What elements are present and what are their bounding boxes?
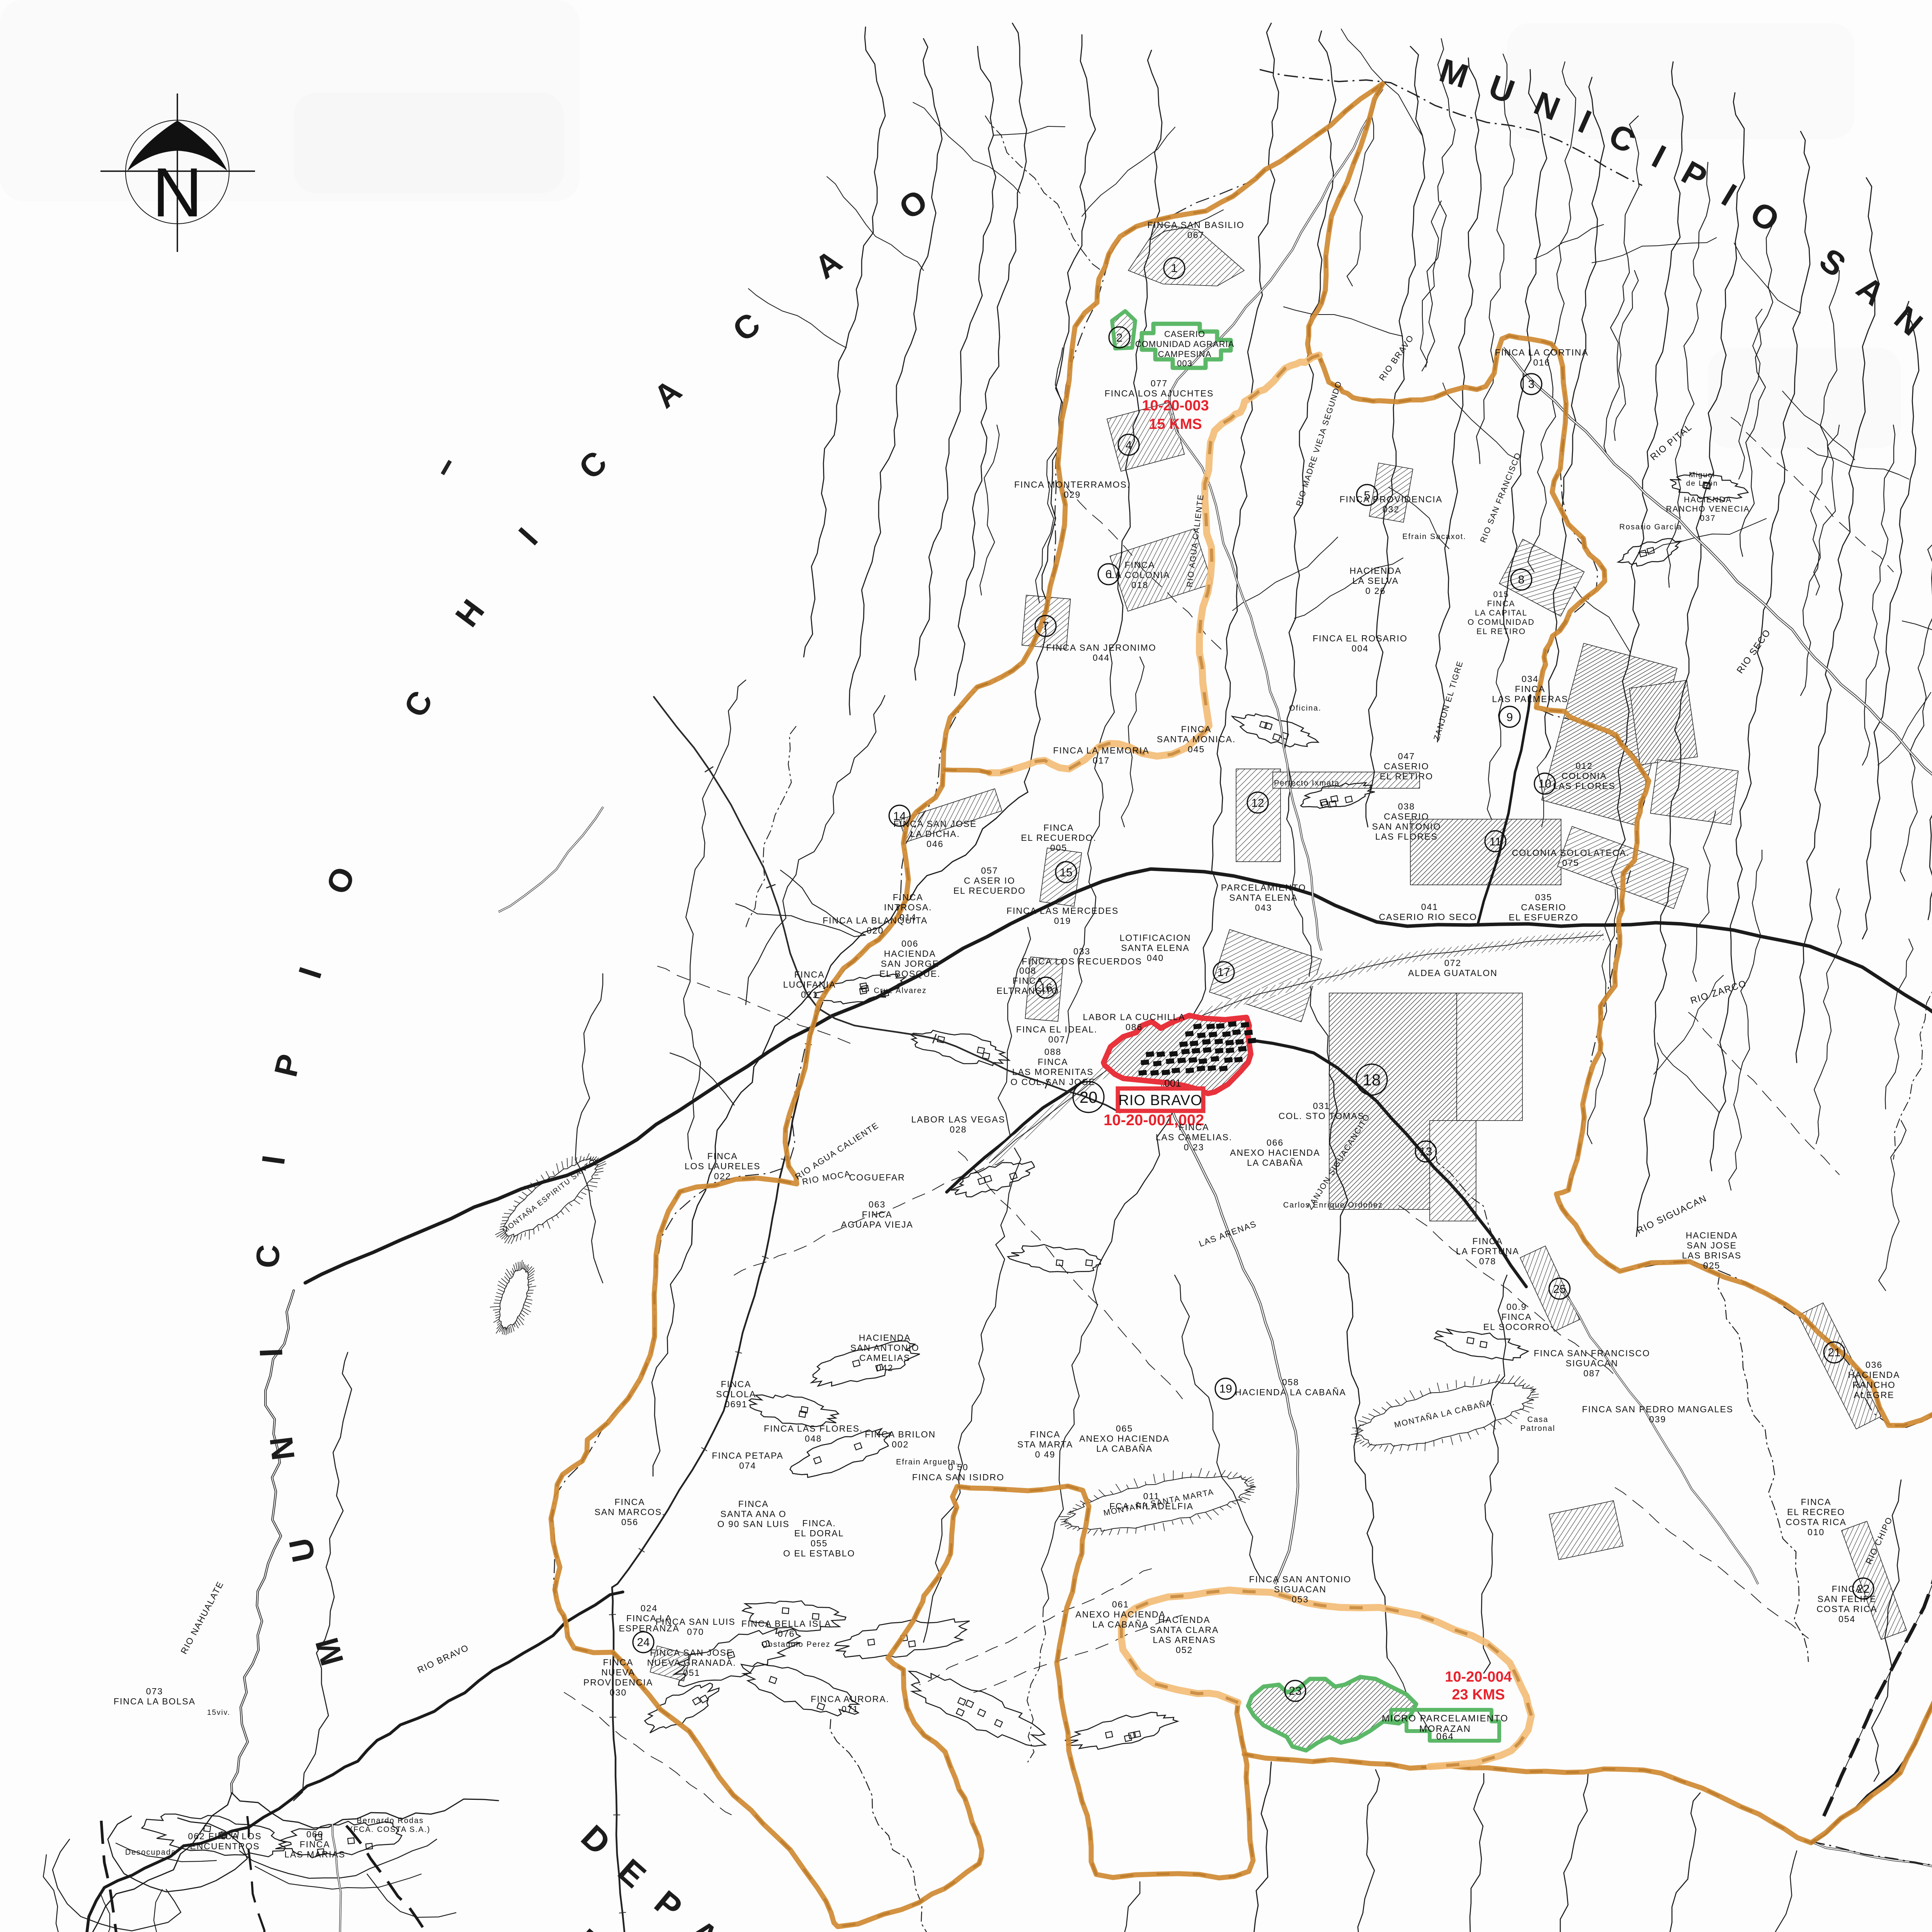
svg-text:064: 064	[1436, 1731, 1454, 1742]
svg-text:15viv.: 15viv.	[207, 1709, 230, 1717]
svg-text:COGUEFAR: COGUEFAR	[849, 1172, 905, 1182]
svg-text:20: 20	[1080, 1088, 1098, 1106]
svg-text:3: 3	[1528, 378, 1535, 391]
svg-text:003: 003	[1177, 359, 1192, 368]
svg-text:2: 2	[1116, 332, 1123, 344]
svg-text:1: 1	[1171, 262, 1178, 275]
svg-text:12: 12	[1251, 797, 1264, 810]
svg-text:N: N	[152, 154, 202, 231]
svg-text:CASERIO: CASERIO	[1164, 329, 1205, 339]
svg-text:10: 10	[1538, 777, 1551, 790]
svg-text:7: 7	[1043, 620, 1049, 633]
svg-text:Efrain Sacaxot.: Efrain Sacaxot.	[1402, 532, 1466, 541]
svg-text:9: 9	[1507, 711, 1513, 724]
svg-text:24: 24	[637, 1636, 650, 1649]
svg-text:CAMPESINA: CAMPESINA	[1158, 349, 1212, 359]
svg-text:Miguelde León: Miguelde León	[1686, 471, 1718, 488]
svg-text:Bernardo Rodas(FCA. COSTA S.A.: Bernardo Rodas(FCA. COSTA S.A.)	[350, 1816, 430, 1834]
svg-text:17: 17	[1217, 966, 1230, 979]
svg-text:4: 4	[1126, 439, 1132, 452]
svg-text:23: 23	[1289, 1685, 1301, 1697]
svg-text:19: 19	[1219, 1383, 1232, 1395]
svg-text:Cruz Alvarez: Cruz Alvarez	[874, 986, 927, 995]
svg-text:Desocupada: Desocupada	[125, 1848, 176, 1857]
svg-text:13: 13	[1419, 1145, 1432, 1158]
svg-text:062 FINCA LOSENCUENTROS: 062 FINCA LOSENCUENTROS	[188, 1831, 262, 1851]
svg-text:RIO BRAVO: RIO BRAVO	[1118, 1092, 1202, 1109]
svg-text:8: 8	[1518, 573, 1525, 586]
svg-text:10-20-004: 10-20-004	[1445, 1669, 1512, 1685]
svg-text:001: 001	[1164, 1077, 1181, 1089]
svg-text:25: 25	[1553, 1283, 1566, 1296]
svg-text:Perfecto Ixmata: Perfecto Ixmata	[1274, 779, 1340, 787]
svg-text:COMUNIDAD AGRARIA: COMUNIDAD AGRARIA	[1135, 339, 1235, 349]
svg-text:Carlos Enrique Ordoñez: Carlos Enrique Ordoñez	[1283, 1201, 1383, 1209]
svg-text:11: 11	[1489, 835, 1501, 848]
svg-text:Oficina.: Oficina.	[1289, 704, 1321, 713]
svg-text:18: 18	[1363, 1071, 1381, 1089]
svg-text:10-20-003: 10-20-003	[1142, 398, 1209, 414]
svg-text:Obstaquio Perez: Obstaquio Perez	[762, 1640, 831, 1649]
svg-text:MICRO PARCELAMIENTO: MICRO PARCELAMIENTO	[1382, 1713, 1509, 1724]
svg-text:Rosario García: Rosario García	[1619, 523, 1682, 531]
svg-text:21: 21	[1828, 1346, 1840, 1359]
svg-text:15 KMS: 15 KMS	[1149, 416, 1202, 432]
svg-text:15: 15	[1060, 866, 1072, 879]
svg-text:23 KMS: 23 KMS	[1452, 1687, 1505, 1703]
